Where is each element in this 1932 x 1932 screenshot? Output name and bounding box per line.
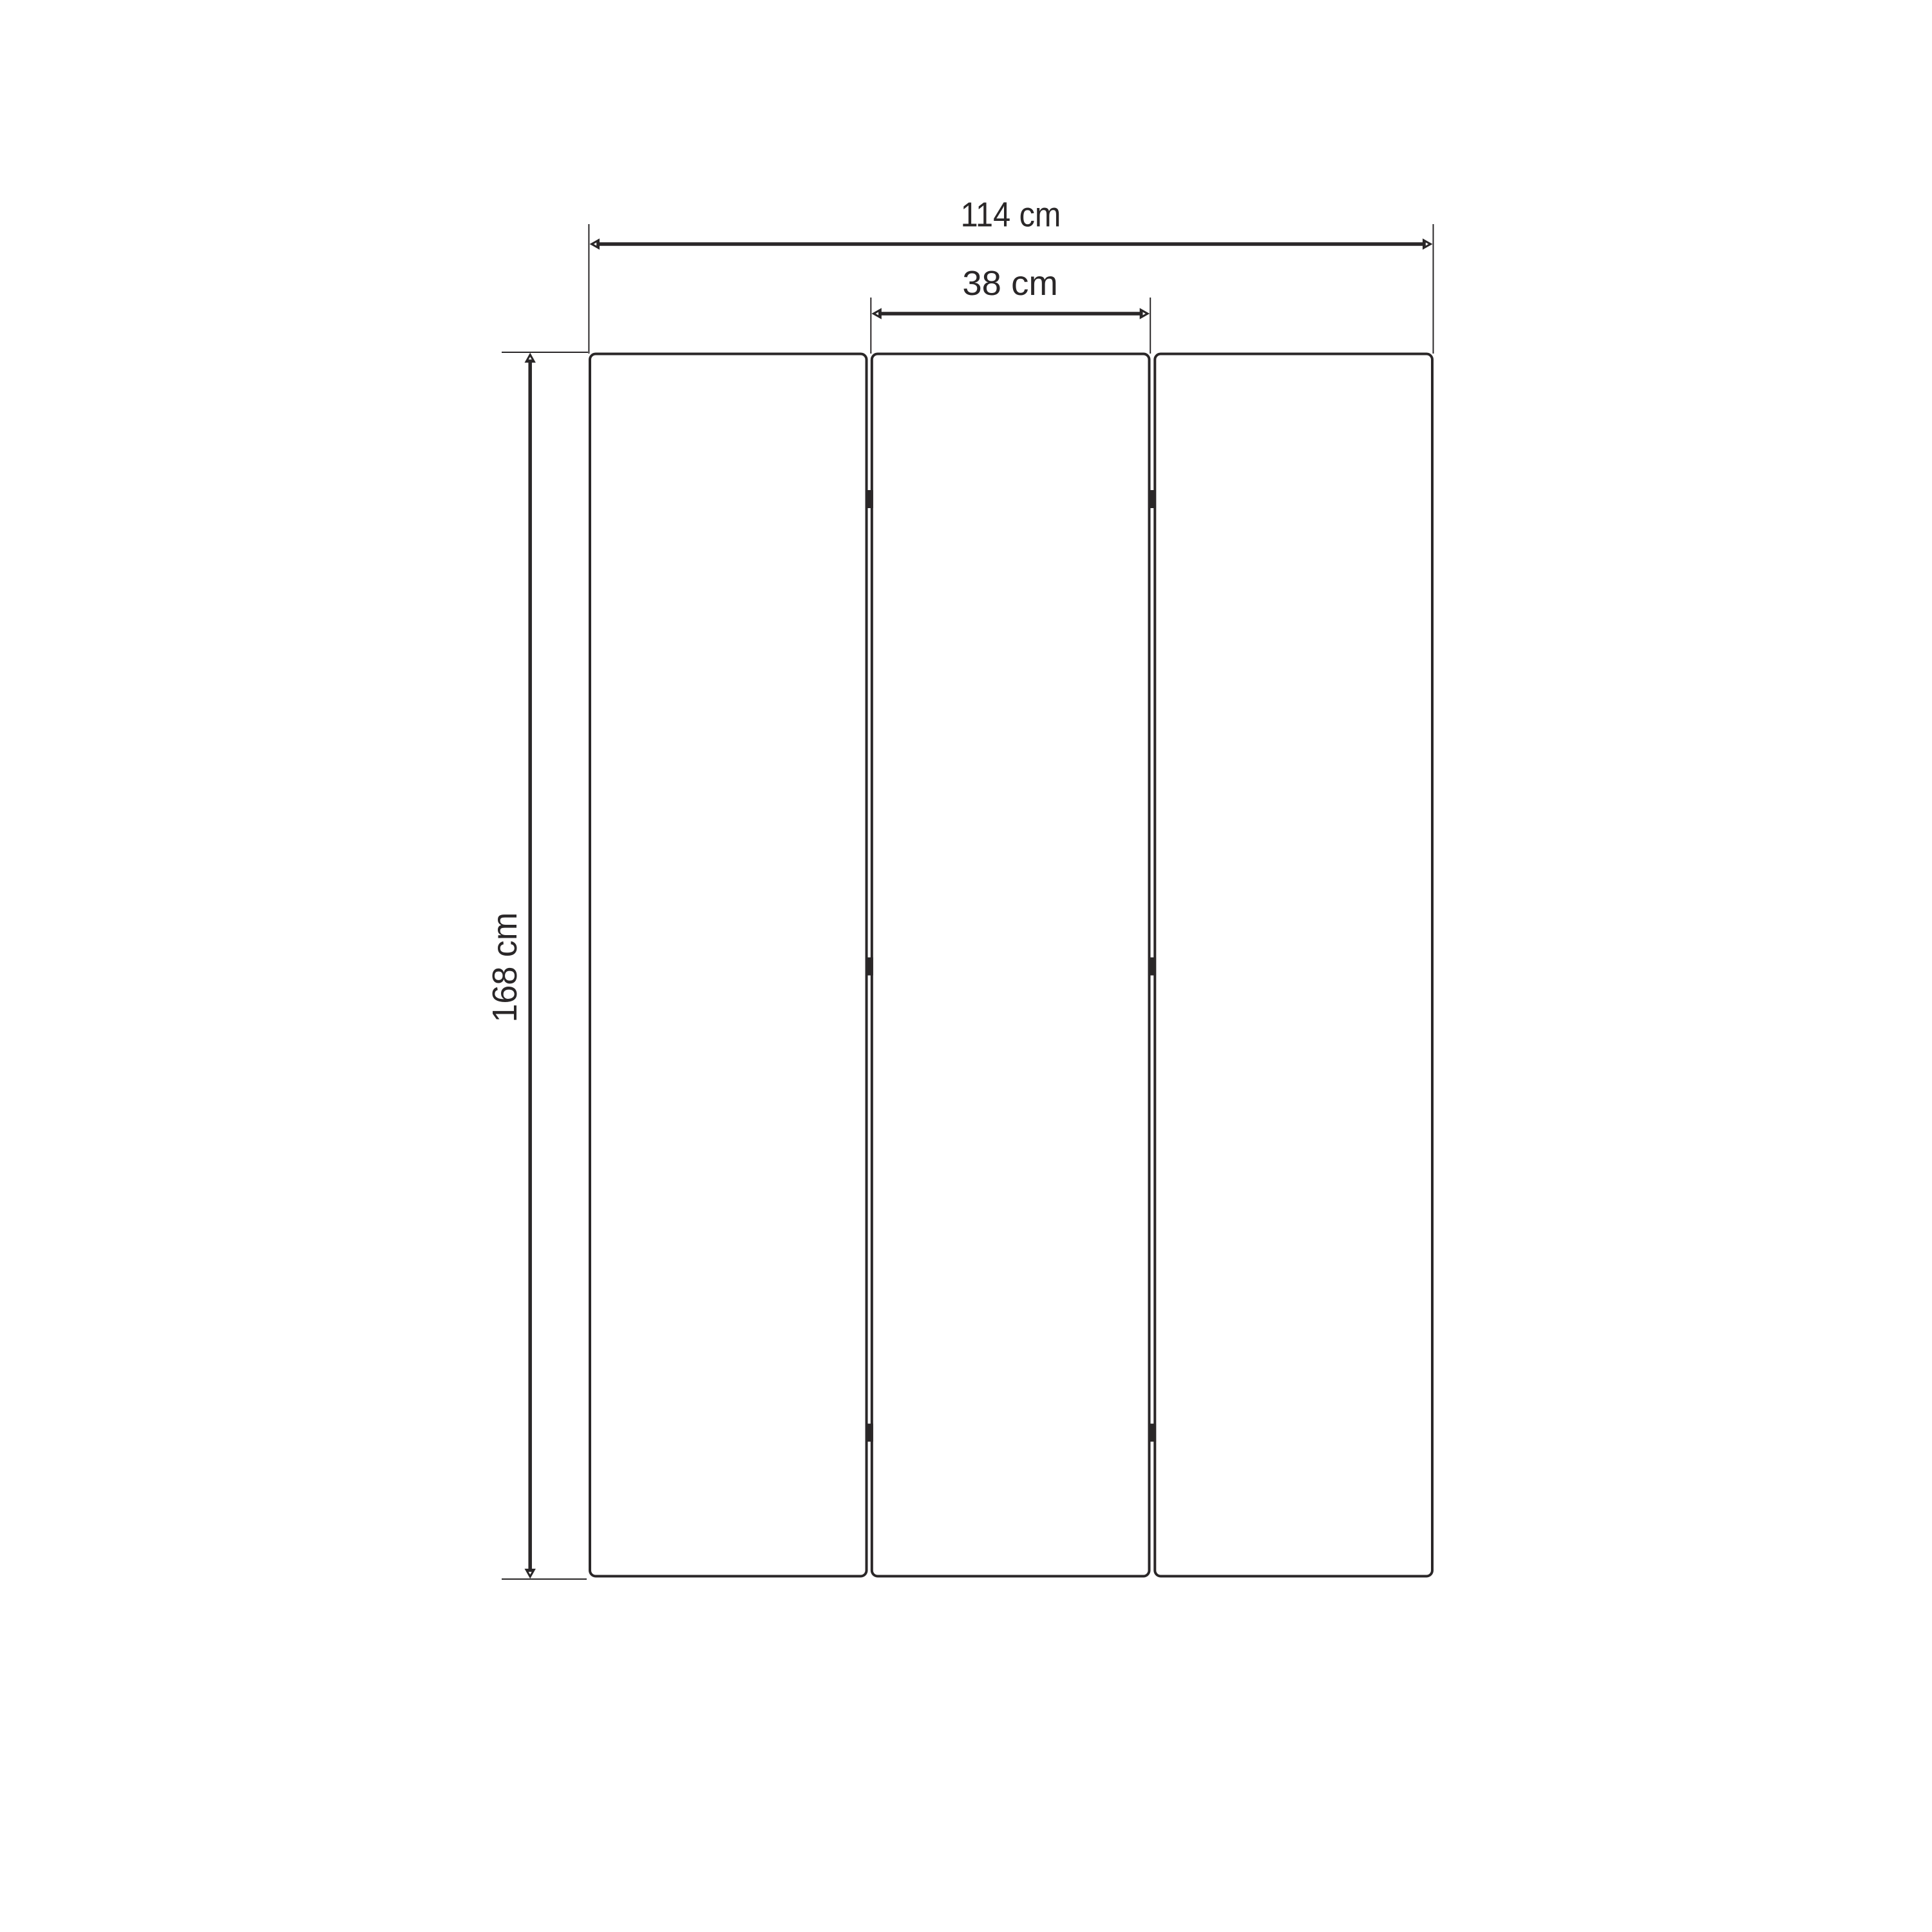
- svg-text:168 cm: 168 cm: [486, 913, 524, 1023]
- svg-text:114 cm: 114 cm: [961, 194, 1061, 234]
- svg-text:38 cm: 38 cm: [962, 263, 1058, 303]
